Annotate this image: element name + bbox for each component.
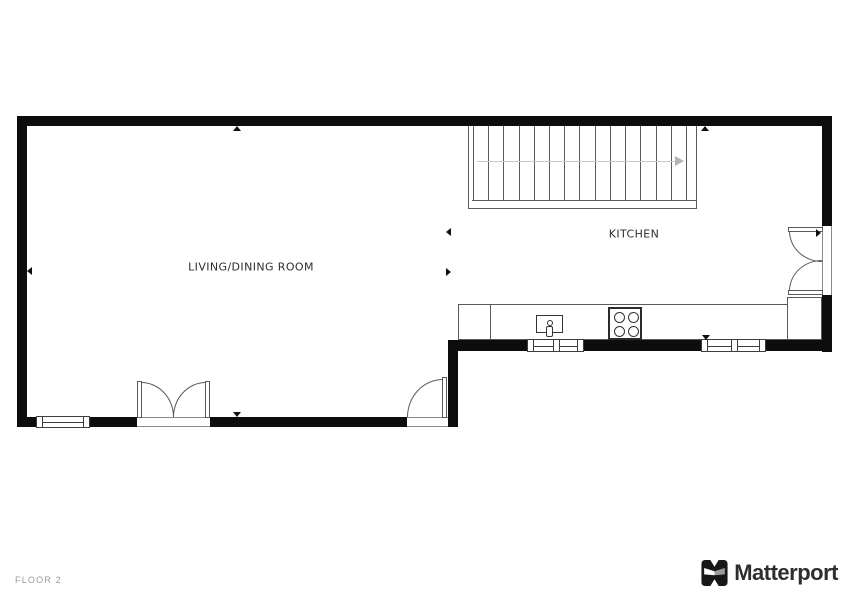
wall-arrow-marker-right: [816, 229, 821, 237]
kitchen-sink: [536, 315, 563, 333]
floorplan-canvas: LIVING/DINING ROOM KITCHEN FLOOR 2 Matte…: [0, 0, 848, 600]
cooktop: [608, 307, 642, 340]
floor-label: FLOOR 2: [15, 575, 62, 585]
wall-arrow-marker-down: [702, 335, 710, 340]
wall-arrow-marker-down: [233, 412, 241, 417]
staircase: [468, 126, 697, 209]
wall-kitchen-south-3: [766, 340, 832, 351]
room-label-kitchen: KITCHEN: [609, 228, 659, 241]
door-swing-arc: [789, 260, 822, 291]
room-label-living-dining: LIVING/DINING ROOM: [188, 261, 314, 274]
burner-icon: [628, 312, 639, 323]
kitchen-counter-return: [787, 297, 822, 340]
door-threshold-single-south: [407, 417, 448, 427]
door-threshold-double-east: [822, 226, 832, 295]
wall-living-south-3: [210, 417, 407, 427]
faucet-icon: [546, 326, 553, 337]
wall-arrow-marker-left: [27, 267, 32, 275]
wall-arrow-marker-left: [446, 228, 451, 236]
window-kitchen-sink: [527, 339, 584, 352]
stair-direction-arrow-icon: [675, 156, 684, 166]
wall-kitchen-south-2: [584, 340, 701, 351]
door-swing-arc: [407, 379, 443, 417]
wall-living-south-2: [90, 417, 137, 427]
wall-arrow-marker-up: [233, 126, 241, 131]
matterport-wordmark: Matterport: [734, 560, 838, 586]
door-threshold-double-south: [137, 417, 210, 427]
burner-icon: [628, 326, 639, 337]
wall-right-upper: [822, 116, 832, 226]
stair-direction-arrow-line: [477, 161, 677, 162]
window-kitchen-east: [701, 339, 766, 352]
matterport-logo: Matterport: [701, 559, 838, 587]
window-southwest: [36, 416, 90, 428]
wall-left: [17, 116, 27, 427]
door-swing-arc: [173, 382, 206, 417]
wall-arrow-marker-up: [701, 126, 709, 131]
burner-icon: [614, 326, 625, 337]
staircase-landing-line: [472, 200, 696, 201]
matterport-logo-icon: [701, 559, 728, 587]
wall-step: [448, 340, 458, 427]
wall-top: [17, 116, 832, 126]
door-swing-arc: [141, 382, 174, 417]
wall-kitchen-south-1: [448, 340, 527, 351]
wall-living-south-1: [17, 417, 36, 427]
counter-divider: [490, 305, 491, 339]
burner-icon: [614, 312, 625, 323]
wall-arrow-marker-right: [446, 268, 451, 276]
